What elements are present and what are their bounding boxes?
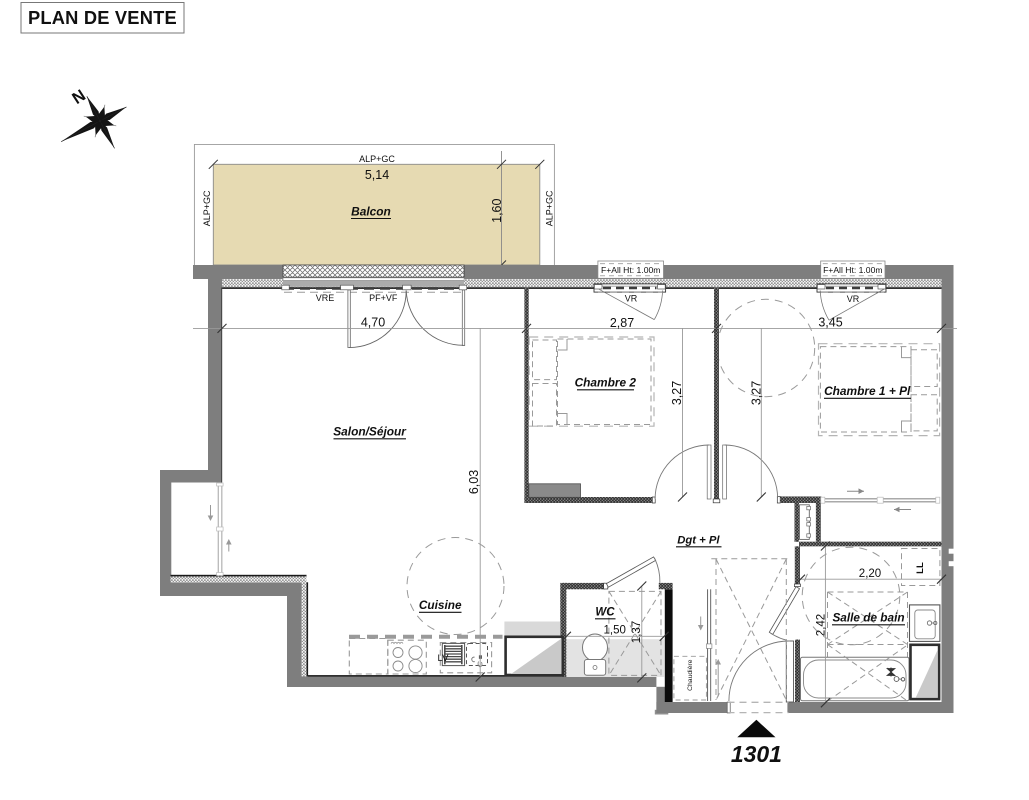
svg-text:WC: WC [595,607,615,619]
svg-text:5,14: 5,14 [365,168,389,182]
svg-text:ALP+GC: ALP+GC [202,190,212,226]
svg-text:Chaudière: Chaudière [687,659,694,691]
svg-text:2,42: 2,42 [816,614,828,636]
svg-text:Chambre 1 + Pl: Chambre 1 + Pl [824,384,911,398]
svg-text:LV: LV [438,653,450,664]
svg-text:6,03: 6,03 [467,470,481,494]
svg-text:VR: VR [847,294,860,304]
svg-text:2,87: 2,87 [610,316,634,330]
svg-text:ALP+GC: ALP+GC [544,190,554,226]
svg-text:Chambre 2: Chambre 2 [575,376,637,390]
svg-text:PF+VF: PF+VF [369,293,398,303]
svg-text:3,27: 3,27 [670,381,684,405]
svg-text:PLAN DE VENTE: PLAN DE VENTE [28,7,177,28]
svg-text:3,27: 3,27 [750,381,764,405]
svg-text:Cuisine: Cuisine [419,598,462,612]
svg-text:F+All Ht: 1.00m: F+All Ht: 1.00m [823,265,882,275]
svg-text:F+All Ht: 1.00m: F+All Ht: 1.00m [601,265,660,275]
svg-text:LL: LL [915,562,926,574]
svg-text:1,50: 1,50 [604,624,626,636]
svg-text:Balcon: Balcon [351,205,391,219]
svg-text:4,70: 4,70 [361,315,385,329]
svg-text:VR: VR [625,294,638,304]
svg-text:Salon/Séjour: Salon/Séjour [333,425,407,439]
svg-text:VRE: VRE [316,293,335,303]
svg-text:1301: 1301 [731,741,782,767]
svg-text:Dgt + Pl: Dgt + Pl [677,535,720,547]
svg-text:Salle de bain: Salle de bain [832,611,904,625]
svg-text:1,37: 1,37 [631,621,643,643]
svg-text:ALP+GC: ALP+GC [359,154,395,164]
svg-text:2,20: 2,20 [859,568,881,580]
svg-text:1,60: 1,60 [490,198,504,222]
svg-text:3,45: 3,45 [818,315,842,329]
